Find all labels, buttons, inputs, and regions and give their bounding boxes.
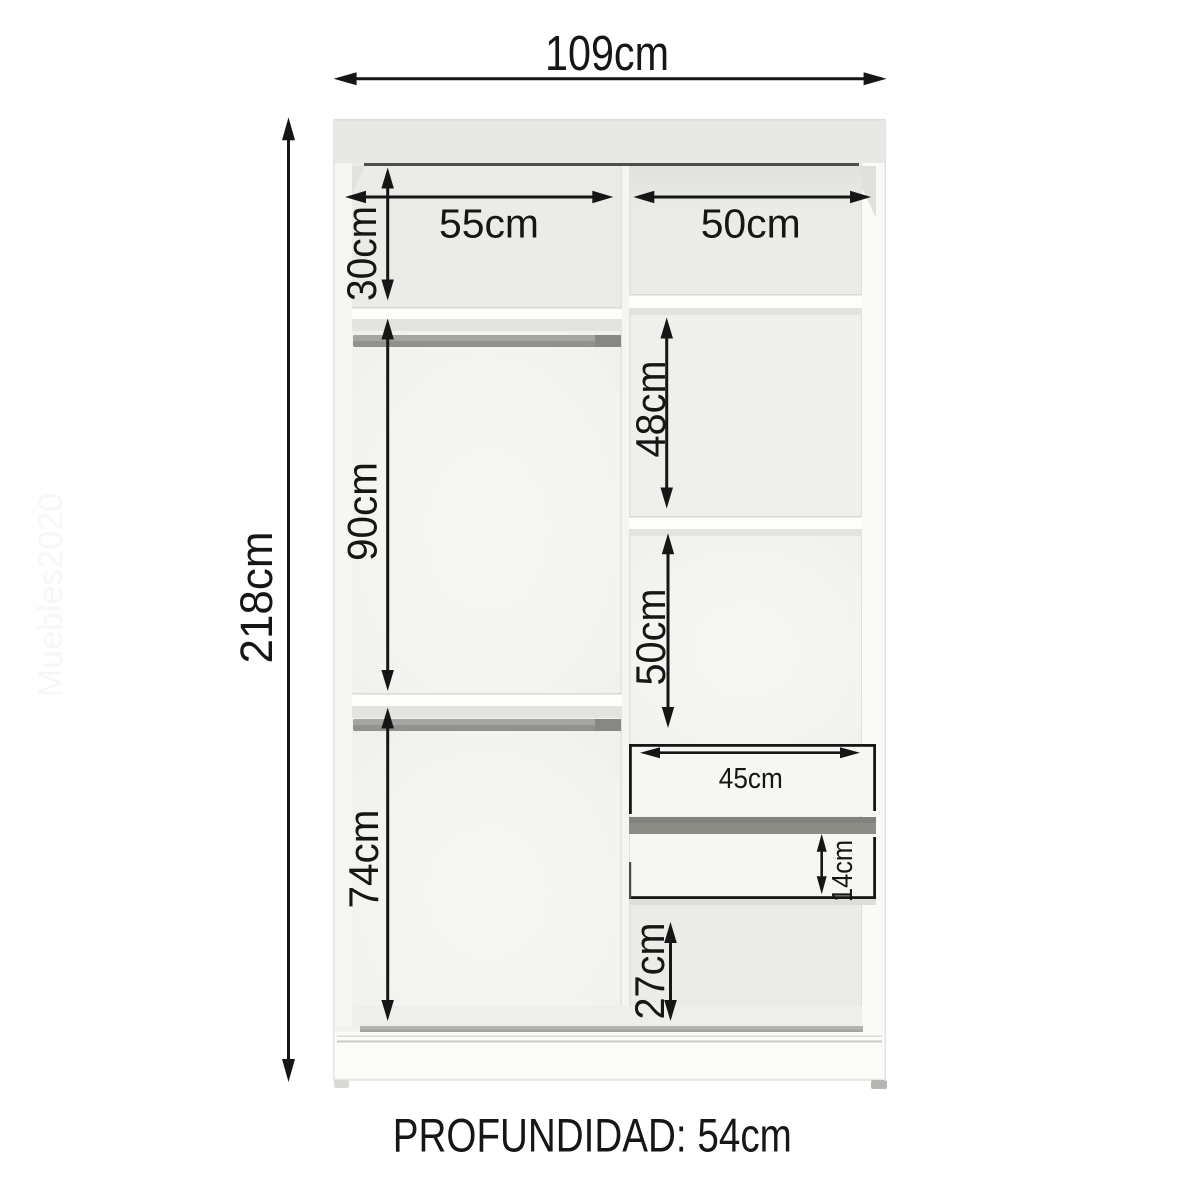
svg-text:14cm: 14cm	[827, 840, 859, 902]
svg-text:Muebles2020: Muebles2020	[32, 493, 70, 697]
svg-text:55cm: 55cm	[439, 201, 539, 247]
svg-text:109cm: 109cm	[545, 27, 669, 81]
svg-text:27cm: 27cm	[626, 923, 673, 1020]
svg-text:45cm: 45cm	[719, 763, 783, 795]
svg-text:90cm: 90cm	[339, 462, 386, 561]
svg-text:74cm: 74cm	[340, 810, 387, 909]
svg-text:218cm: 218cm	[231, 532, 282, 664]
svg-text:30cm: 30cm	[338, 206, 385, 301]
svg-text:PROFUNDIDAD: 54cm: PROFUNDIDAD: 54cm	[393, 1109, 792, 1162]
svg-text:48cm: 48cm	[627, 361, 674, 458]
svg-text:50cm: 50cm	[627, 589, 674, 686]
svg-text:50cm: 50cm	[701, 201, 801, 247]
